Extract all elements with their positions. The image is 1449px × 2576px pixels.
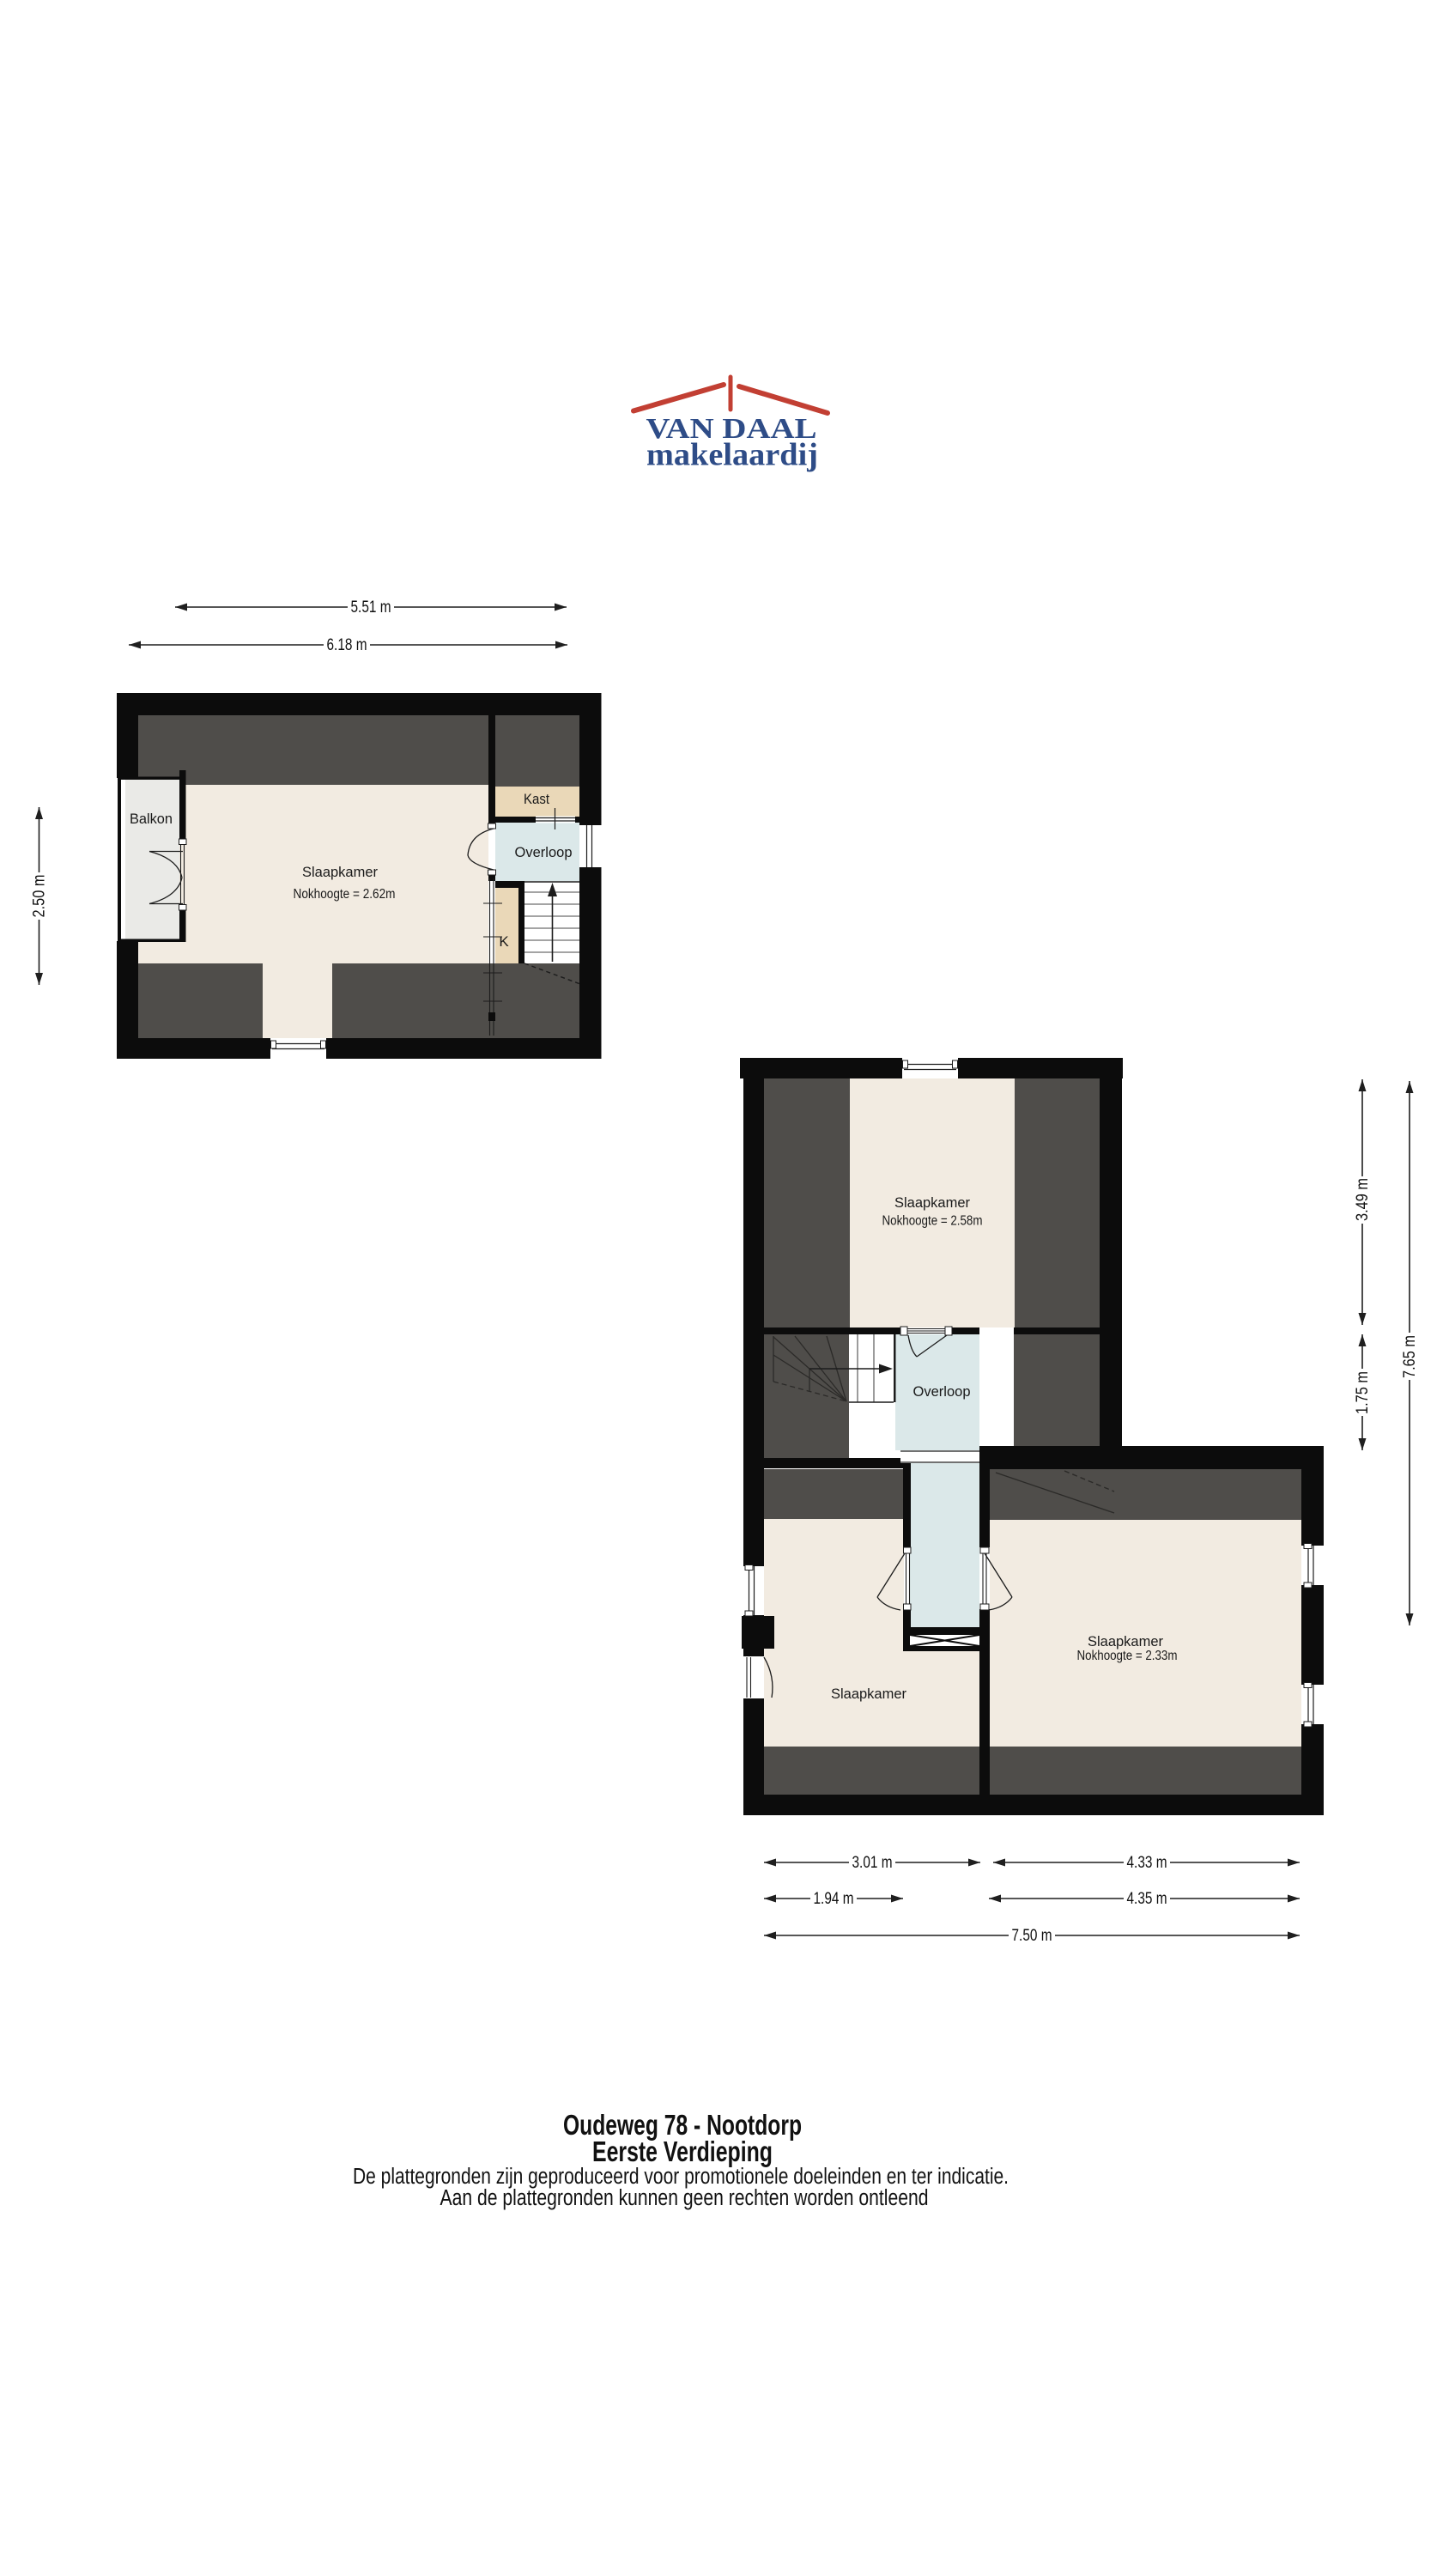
svg-text:K: K	[499, 933, 509, 950]
svg-text:Overloop: Overloop	[515, 844, 573, 860]
svg-text:Kast: Kast	[524, 791, 549, 807]
svg-text:3.01 m: 3.01 m	[852, 1854, 893, 1872]
svg-text:Overloop: Overloop	[913, 1383, 971, 1400]
svg-text:6.18 m: 6.18 m	[327, 636, 367, 654]
svg-text:4.33 m: 4.33 m	[1127, 1854, 1167, 1872]
svg-text:1.94 m: 1.94 m	[814, 1890, 854, 1908]
svg-text:Slaapkamer: Slaapkamer	[831, 1686, 906, 1702]
svg-text:2.50 m: 2.50 m	[31, 875, 49, 918]
svg-text:1.75 m: 1.75 m	[1354, 1371, 1372, 1414]
svg-text:Aan de plattegronden kunnen ge: Aan de plattegronden kunnen geen rechten…	[440, 2186, 929, 2210]
svg-text:7.50 m: 7.50 m	[1012, 1927, 1052, 1945]
svg-text:Slaapkamer: Slaapkamer	[1088, 1633, 1163, 1649]
svg-text:Nokhoogte = 2.62m: Nokhoogte = 2.62m	[294, 887, 396, 902]
svg-text:7.65 m: 7.65 m	[1401, 1335, 1419, 1378]
svg-text:Nokhoogte = 2.58m: Nokhoogte = 2.58m	[882, 1214, 983, 1229]
svg-text:De plattegronden zijn geproduc: De plattegronden zijn geproduceerd voor …	[353, 2165, 1009, 2189]
svg-text:Slaapkamer: Slaapkamer	[894, 1194, 970, 1211]
svg-text:makelaardij: makelaardij	[646, 438, 818, 473]
svg-text:3.49 m: 3.49 m	[1354, 1178, 1372, 1221]
svg-text:Balkon: Balkon	[130, 811, 173, 827]
svg-text:Nokhoogte = 2.33m: Nokhoogte = 2.33m	[1077, 1649, 1178, 1663]
svg-text:Eerste Verdieping: Eerste Verdieping	[592, 2136, 773, 2167]
svg-text:Slaapkamer: Slaapkamer	[302, 864, 378, 880]
svg-text:4.35 m: 4.35 m	[1127, 1890, 1167, 1908]
svg-text:5.51 m: 5.51 m	[351, 598, 391, 617]
